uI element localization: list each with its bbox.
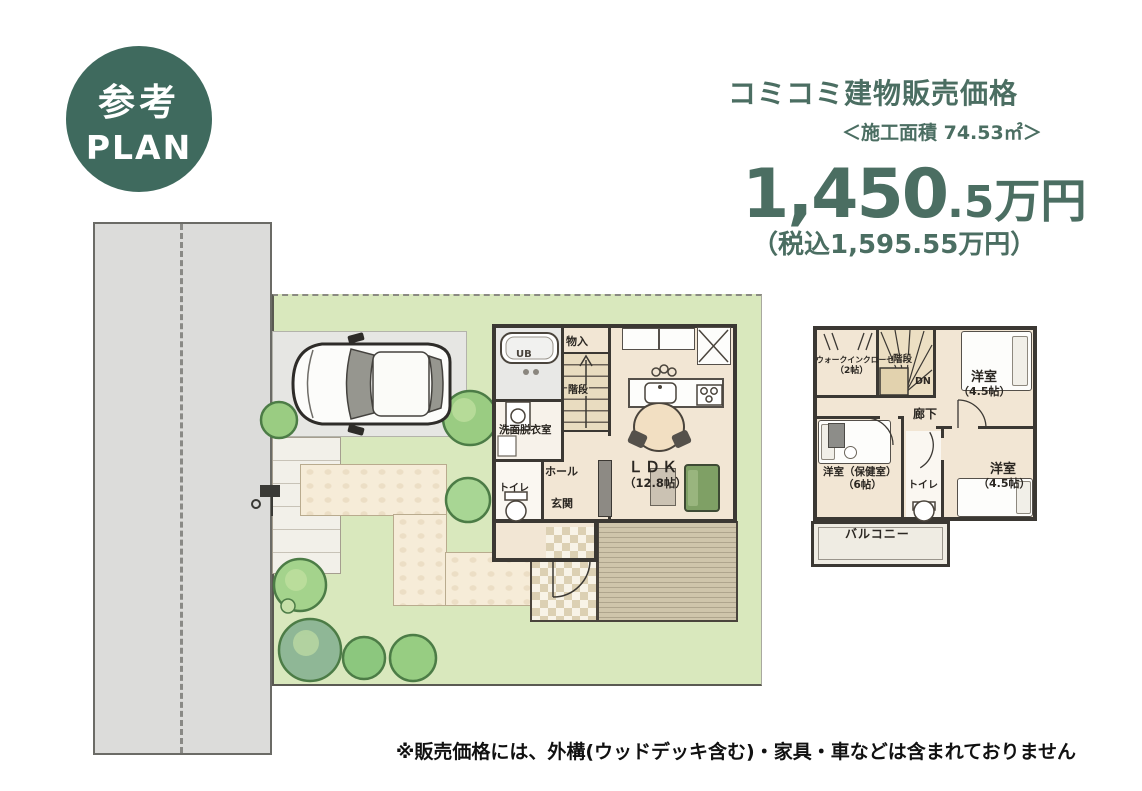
room-label-bedroom-bl-size: （6帖） xyxy=(843,480,882,492)
room-label-toilet-1f: トイレ xyxy=(499,483,529,494)
price-disclaimer: ※販売価格には、外構(ウッドデッキ含む)・家具・車などは含まれておりません xyxy=(396,737,1076,764)
dresser xyxy=(828,423,845,448)
kitchen-counter xyxy=(628,378,724,408)
room-label-storage: 物入 xyxy=(566,336,588,348)
stool xyxy=(844,446,857,459)
bed-pillow xyxy=(1012,336,1028,386)
price-decimal: .5 xyxy=(947,177,994,228)
room-label-washroom: 洗面脱衣室 xyxy=(499,425,552,437)
badge-text-en: PLAN xyxy=(86,128,192,167)
room-label-toilet-2f: トイレ xyxy=(908,480,938,491)
genkan-tile xyxy=(546,527,594,558)
entrance-porch xyxy=(530,558,598,622)
room-label-balcony: バルコニー xyxy=(845,528,910,541)
bath-room xyxy=(496,328,561,399)
room-label-ub: UB xyxy=(516,349,532,360)
reference-plan-sheet: 参考 PLAN コミコミ建物販売価格 ＜施工面積 74.53㎡＞ 1,450.5… xyxy=(0,0,1142,791)
reference-plan-badge: 参考 PLAN xyxy=(66,46,212,192)
room-label-bedroom-tr: 洋室 xyxy=(971,371,997,385)
room-label-genkan: 玄関 xyxy=(551,498,573,510)
room-label-bedroom-br-size: （4.5帖） xyxy=(978,478,1031,490)
garden-path-segment xyxy=(300,464,447,516)
driveway xyxy=(272,331,467,437)
badge-text-jp: 参考 xyxy=(98,72,180,126)
toilet-room-2f xyxy=(906,431,941,517)
room-label-hall: ホール xyxy=(545,466,578,478)
kitchen-cabinet xyxy=(659,328,695,350)
room-label-corridor: 廊下 xyxy=(913,408,937,421)
price-unit: 万円 xyxy=(994,165,1086,231)
wood-deck xyxy=(597,521,738,622)
refrigerator-space xyxy=(697,327,731,365)
price-title: コミコミ建物販売価格 xyxy=(728,72,1018,112)
room-label-bedroom-bl: 洋室（保健室） xyxy=(823,467,897,479)
price-value: 1,450.5万円 xyxy=(742,155,1086,234)
kitchen-cabinet xyxy=(622,328,659,350)
room-label-dn: DN xyxy=(915,377,931,387)
room-label-stairs-2f: 階段 xyxy=(893,355,912,365)
price-main: 1,450 xyxy=(742,155,947,234)
room-label-ldk-size: （12.8帖） xyxy=(624,477,687,490)
room-label-stairs-1f: 階段 xyxy=(567,385,589,396)
sofa-cushion xyxy=(688,470,698,506)
room-label-bedroom-tr-size: （4.5帖） xyxy=(958,386,1011,398)
room-label-wic-size: （2帖） xyxy=(835,367,868,377)
tv-board xyxy=(598,460,612,517)
road-centerline xyxy=(180,224,183,753)
price-tax-note: （税込1,595.55万円） xyxy=(752,224,1036,261)
construction-area-note: ＜施工面積 74.53㎡＞ xyxy=(842,118,1042,145)
room-label-bedroom-br: 洋室 xyxy=(990,463,1016,477)
garden-path-segment xyxy=(393,514,447,606)
room-label-ldk: ＬＤＫ xyxy=(628,459,679,476)
